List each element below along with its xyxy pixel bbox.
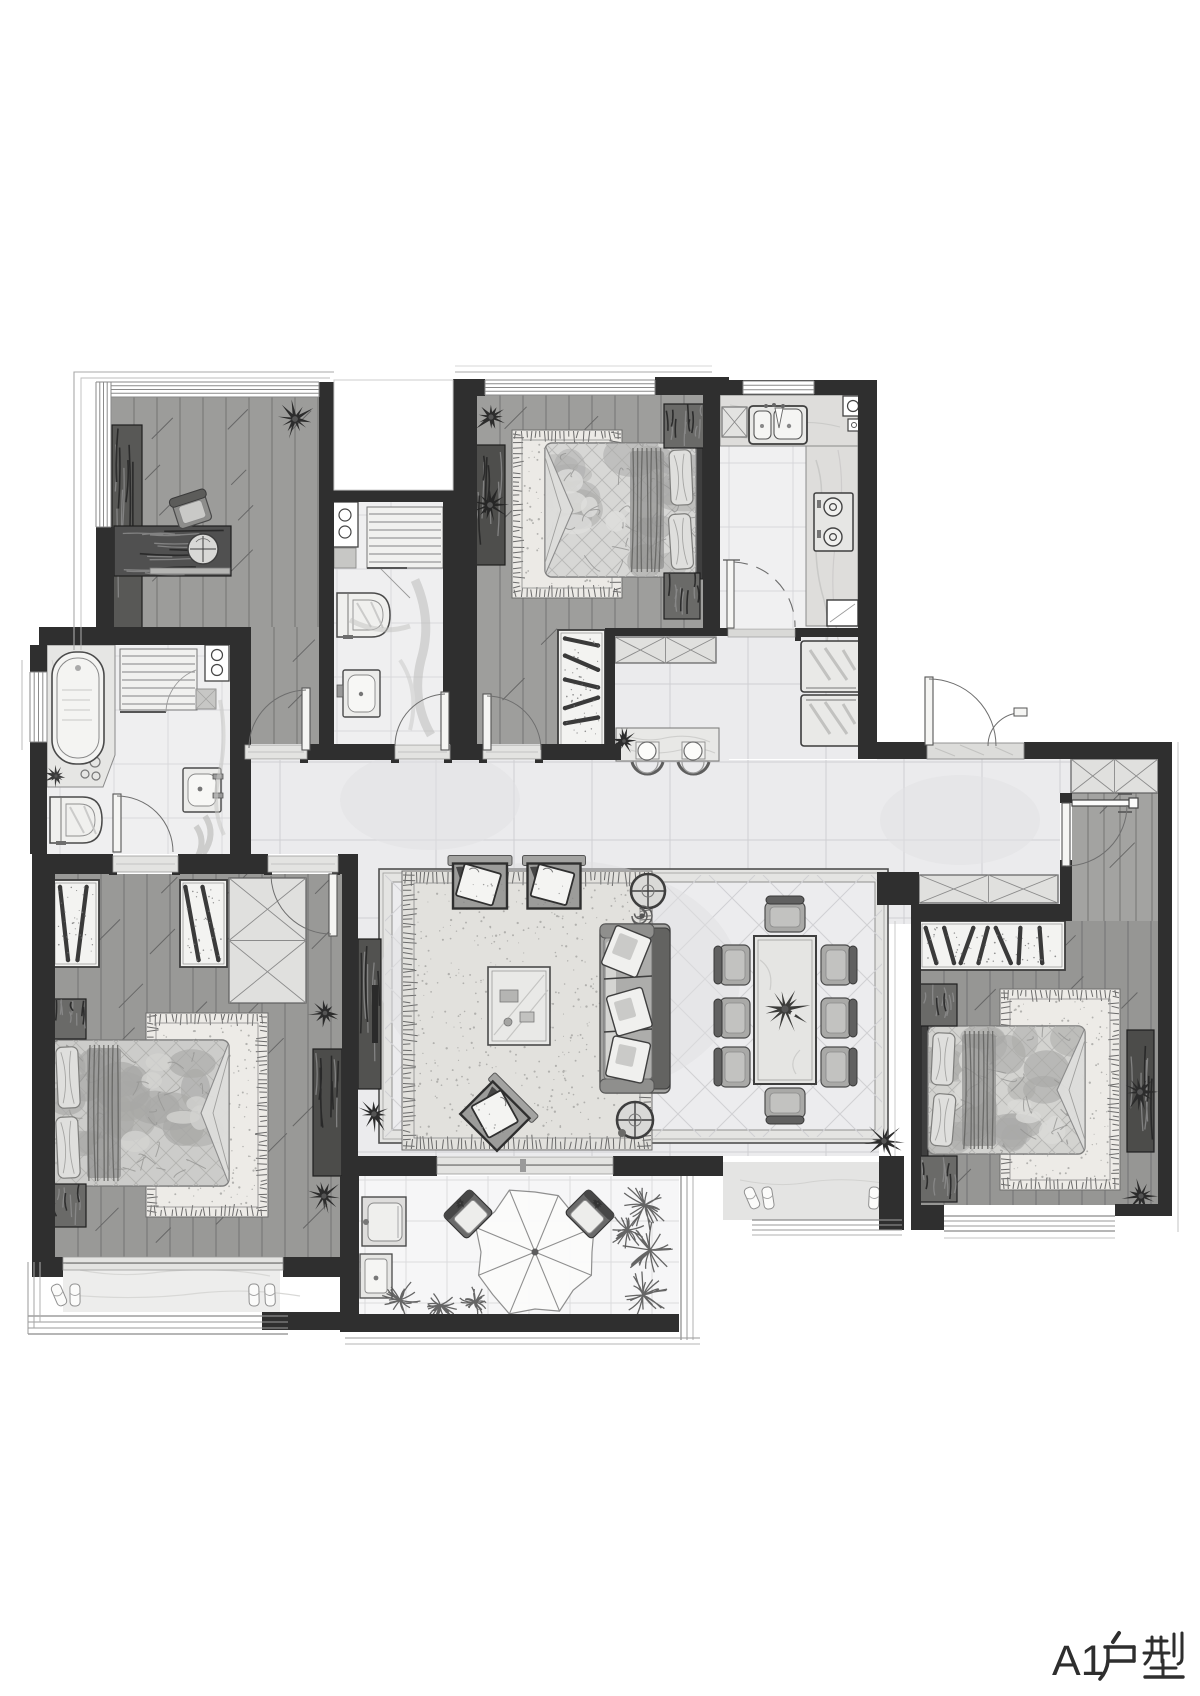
svg-text:A1: A1	[1052, 1637, 1105, 1685]
